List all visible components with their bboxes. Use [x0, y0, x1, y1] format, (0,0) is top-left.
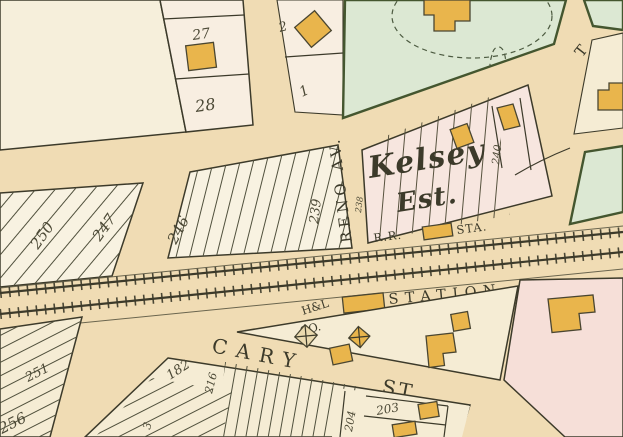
lot-number-28: 28: [193, 94, 217, 116]
plat-map-svg: 27 28 2 1 T 250 247 246 239: [0, 0, 623, 437]
building-lot27: [186, 42, 217, 70]
building-lot203: [418, 402, 439, 420]
building-small: [330, 344, 353, 365]
building-small: [451, 312, 471, 332]
lot-number-27: 27: [190, 26, 211, 44]
building-small: [392, 421, 417, 437]
block-top-left: [0, 0, 186, 150]
map-canvas[interactable]: 27 28 2 1 T 250 247 246 239: [0, 0, 623, 437]
lot-number-239: 239: [307, 198, 325, 225]
